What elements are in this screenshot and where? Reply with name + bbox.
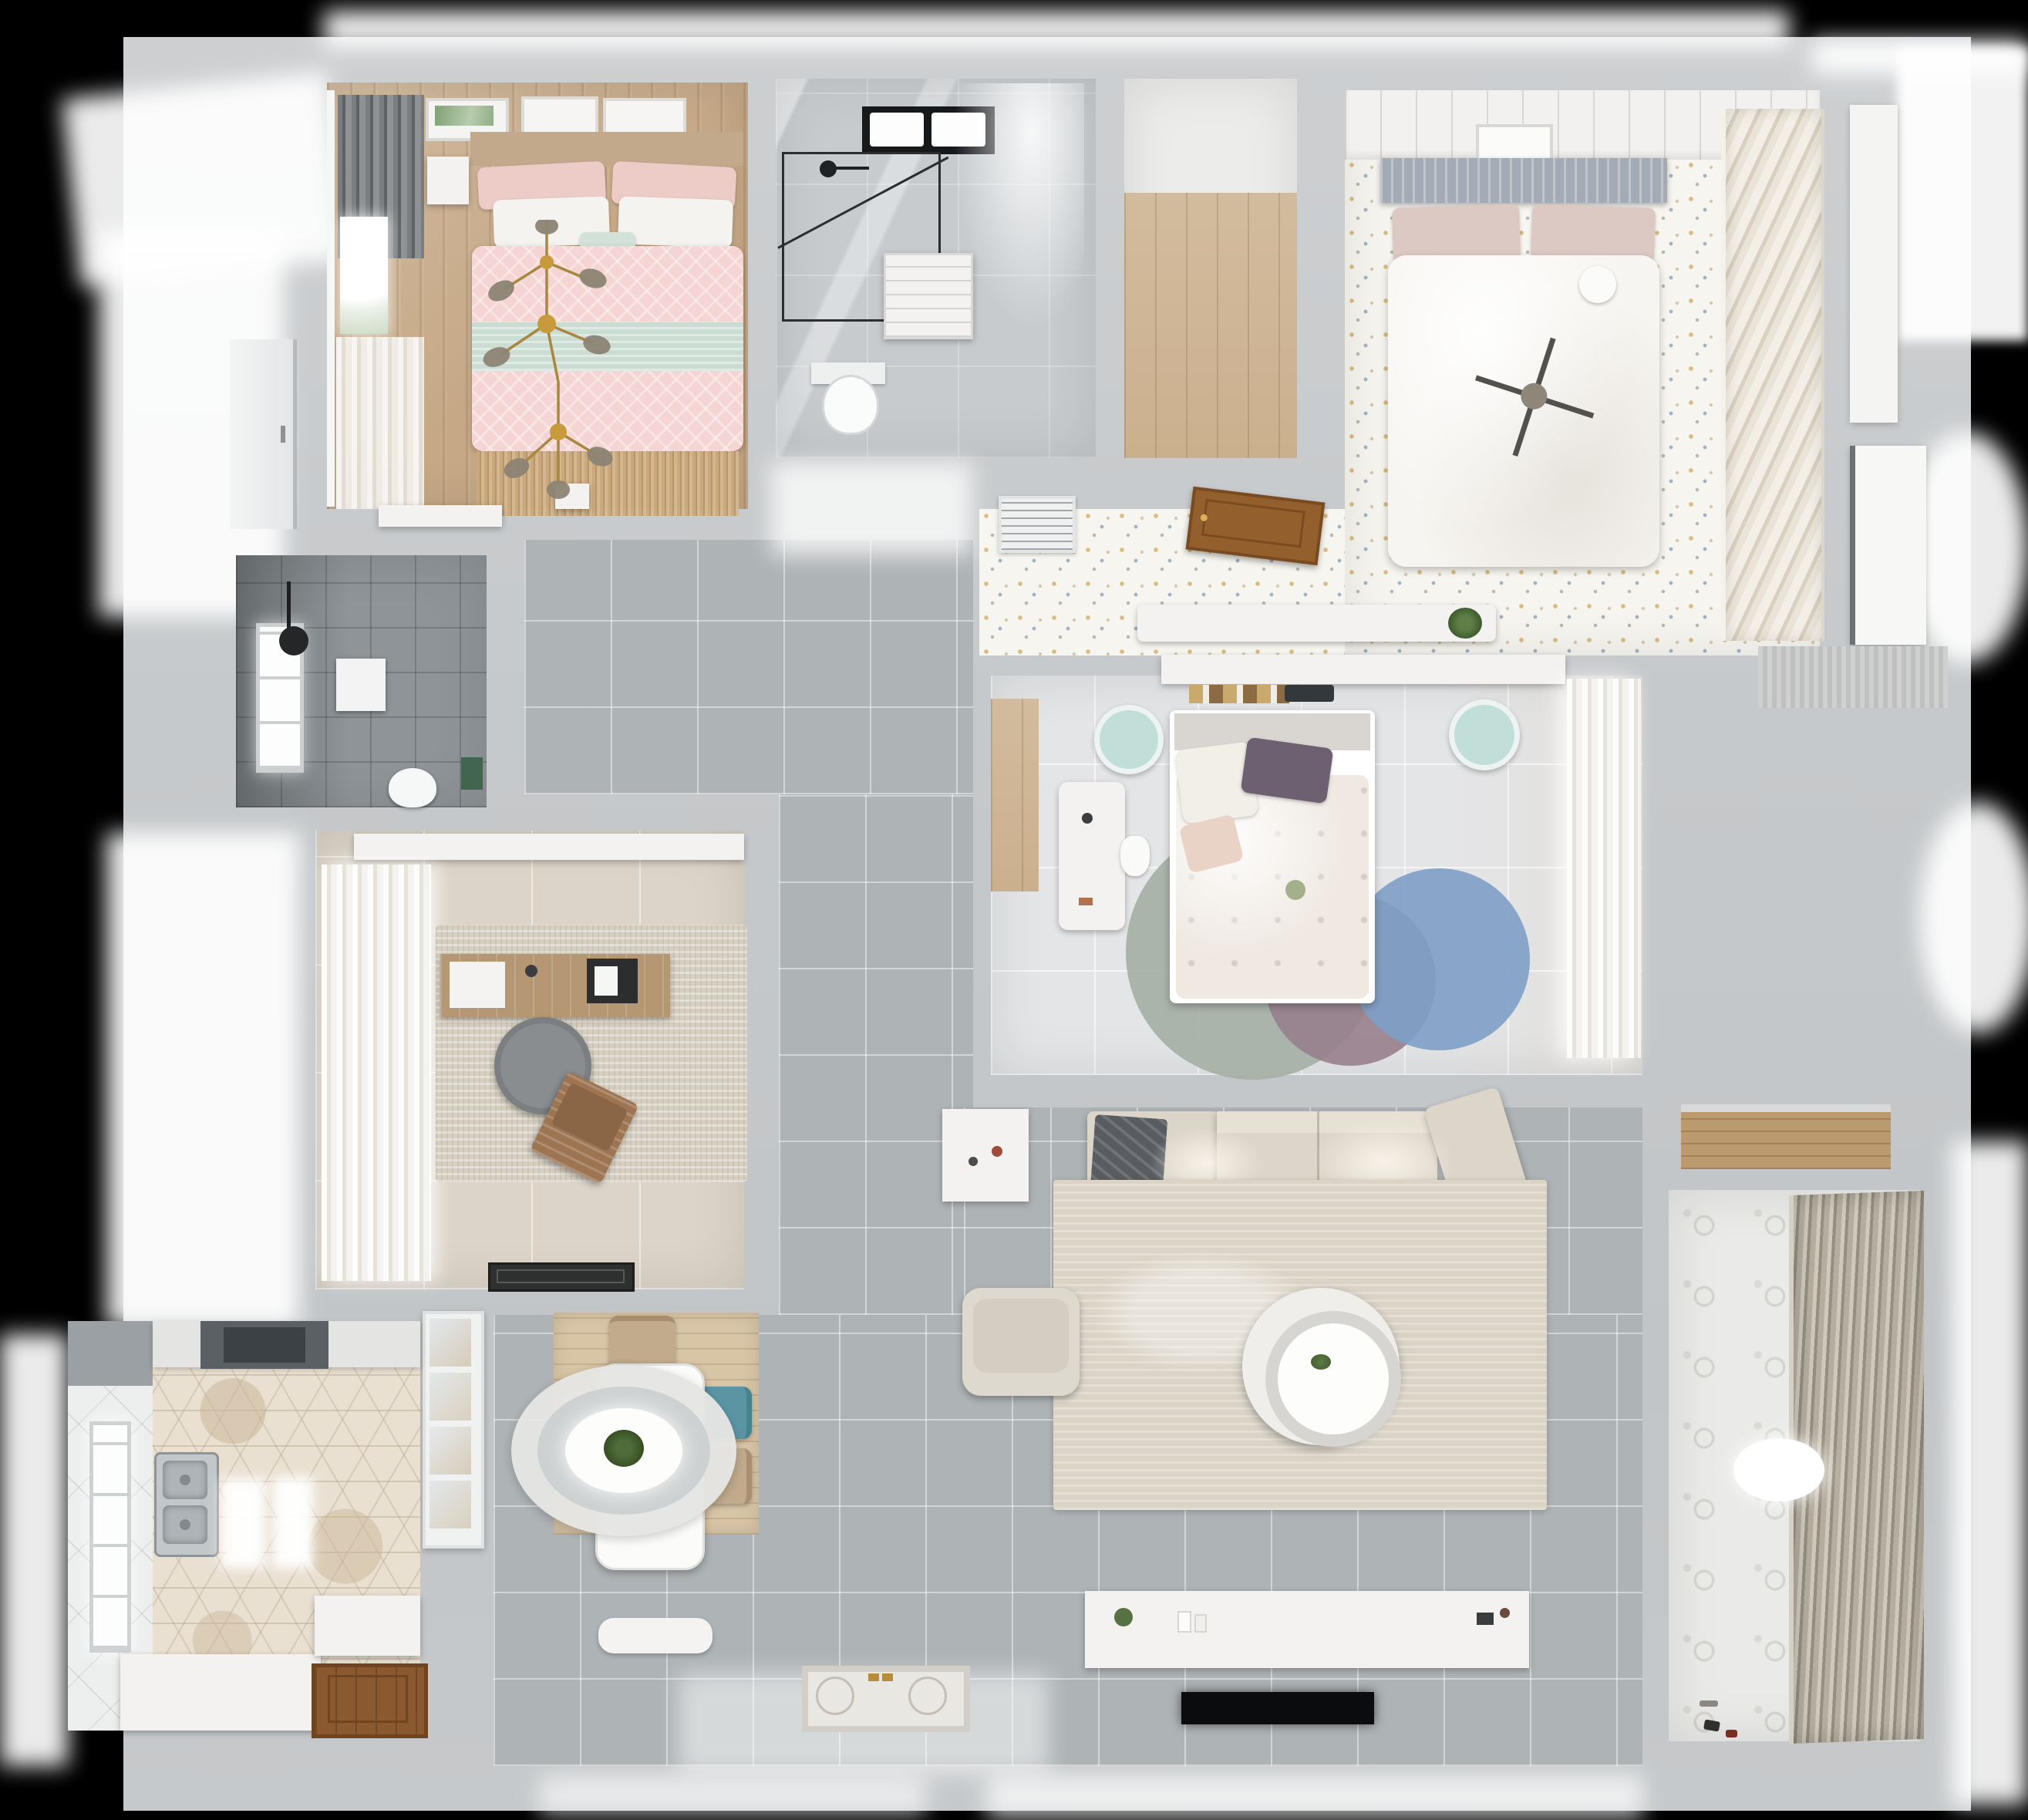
cabinet-pane-3 — [430, 1427, 471, 1475]
headboard-shelf — [1161, 655, 1565, 684]
office-shelf — [354, 834, 744, 860]
console-bottle-1 — [1177, 1611, 1191, 1633]
doormat-circle-left — [816, 1677, 854, 1715]
curtain-panel-light — [336, 337, 424, 509]
exterior-glow-kitchen — [0, 1334, 68, 1766]
doormat-handle-right — [882, 1673, 893, 1681]
circle-rug-blue — [1348, 868, 1530, 1050]
console-plant-decor — [1114, 1608, 1133, 1626]
office-curtains — [322, 865, 431, 1281]
window-light — [340, 217, 388, 334]
counter-bottom — [120, 1654, 321, 1731]
balcony-closet-wood-shelf — [1681, 1104, 1891, 1169]
door-left-leaf — [230, 339, 297, 529]
doormat-handle-left — [868, 1673, 879, 1681]
toilet-bowl — [822, 375, 879, 435]
bed-guest — [1380, 158, 1667, 575]
coffee-table-ring — [1265, 1311, 1401, 1447]
headboard-gray — [1380, 158, 1667, 203]
pillow-purple — [1241, 737, 1334, 804]
exterior-glow-bottom-entry — [540, 1775, 925, 1815]
art-green-leaves — [435, 106, 494, 126]
balcony-ceiling-light — [1733, 1438, 1824, 1501]
console-plant — [1448, 608, 1482, 639]
exterior-glow-right-blob2 — [1920, 802, 2028, 1033]
console-shelf — [1137, 605, 1496, 642]
door-panel-line — [1201, 499, 1305, 548]
toilet-dark-room — [389, 768, 436, 807]
exterior-glow-right-corner — [1897, 48, 2028, 341]
tv-console — [1085, 1591, 1529, 1668]
room-home-office — [315, 831, 744, 1289]
armchair — [962, 1288, 1080, 1396]
shower-head-dark — [279, 626, 308, 656]
armchair-seat — [973, 1299, 1069, 1373]
dining-chair-bottom — [598, 1618, 712, 1653]
exterior-glow-top — [324, 11, 1789, 48]
room-kitchen — [68, 1321, 420, 1731]
toy-red — [1726, 1730, 1737, 1737]
window-sill — [327, 90, 335, 507]
desk-return-panel — [450, 962, 505, 1008]
nightstand — [427, 157, 469, 204]
glass-cabinet — [423, 1311, 484, 1549]
bedroom-master-bench — [379, 505, 502, 527]
desk-item-copper — [1079, 898, 1093, 905]
laptop-screen — [595, 966, 618, 996]
shower-arm — [835, 167, 869, 170]
toy-gray — [1700, 1700, 1718, 1707]
desk-item-dark — [1082, 813, 1093, 824]
kitchen-wood-door — [312, 1663, 428, 1738]
range-hood — [200, 1321, 328, 1369]
closet-wood-floor — [1124, 193, 1297, 458]
wood-door-panel — [328, 1675, 408, 1723]
hall-door-glow — [771, 463, 972, 555]
room-bathroom-shower — [236, 555, 487, 807]
air-vent — [999, 496, 1076, 553]
cabinet-pane-1 — [430, 1319, 471, 1367]
room-bedroom-master — [327, 83, 748, 509]
right-open-door — [1850, 446, 1926, 645]
entry-doormat — [802, 1666, 970, 1732]
counter-right — [315, 1596, 420, 1656]
laptop — [587, 959, 638, 1003]
tv-screen — [1181, 1692, 1374, 1724]
sink-drain-bottom — [180, 1519, 190, 1530]
coffee-table-sprig — [1311, 1354, 1331, 1370]
bedside-stool-left — [1094, 705, 1164, 774]
toy-dark — [1703, 1719, 1720, 1731]
doormat-circle-right — [908, 1677, 947, 1715]
exterior-glow-left-office — [106, 833, 299, 1326]
kitchen-wall-gray — [68, 1321, 153, 1386]
floorplan-stage — [0, 0, 2028, 1820]
cabinet-pane-2 — [430, 1373, 471, 1421]
console-cup — [1500, 1608, 1510, 1618]
bedroom2-desk — [1059, 782, 1125, 930]
side-table-decor-dark — [969, 1157, 978, 1166]
room-balcony — [1669, 1190, 1919, 1741]
shower-glass-diagonal — [777, 157, 948, 249]
skylight-pane-left — [870, 113, 924, 147]
side-table — [942, 1109, 1029, 1202]
exterior-glow-right-balcony — [1952, 1141, 2028, 1805]
slatted-wardrobe — [1721, 109, 1824, 641]
shelf-books — [1189, 685, 1289, 703]
right-hatched-floor — [1758, 646, 1948, 708]
branch-chandelier — [466, 220, 628, 509]
kitchen-window — [89, 1421, 131, 1653]
office-doormat — [488, 1262, 635, 1292]
desk-lamp — [525, 965, 537, 977]
duvet-sage-accent — [1285, 880, 1305, 900]
cabinet-pane-4 — [430, 1481, 471, 1528]
exterior-glow-bottom-living — [987, 1775, 1642, 1818]
shower-pole — [287, 581, 291, 631]
hood-inner — [224, 1327, 305, 1363]
bedroom2-curtains — [1567, 679, 1641, 1058]
console-dark-item — [1477, 1613, 1494, 1625]
cross-center — [1518, 379, 1551, 413]
toilet — [811, 362, 885, 433]
room-storage-closet — [1124, 79, 1297, 458]
office-desk — [440, 954, 670, 1017]
shelf-tablet — [1285, 685, 1334, 702]
double-sink — [154, 1452, 219, 1557]
plant-centerpiece — [604, 1430, 644, 1467]
hall-upper — [524, 540, 973, 794]
hall-corridor — [779, 794, 973, 1315]
shower-head — [820, 160, 837, 177]
room-bathroom-main — [776, 79, 1096, 458]
side-table-decor-red — [992, 1146, 1002, 1157]
wood-floor-strip — [991, 699, 1039, 891]
green-towel — [461, 757, 483, 790]
wall-niche — [336, 659, 386, 711]
room-bedroom-guest — [1345, 90, 1820, 656]
bedside-stool-right — [1449, 699, 1520, 770]
doormat-inner-line — [497, 1269, 625, 1283]
door-handle — [281, 426, 285, 443]
console-bottle-2 — [1194, 1614, 1207, 1633]
sink-drain-top — [180, 1475, 190, 1485]
kitchen-light-right — [273, 1477, 313, 1568]
right-partition-white — [1850, 105, 1898, 423]
vanity-cabinet — [884, 253, 973, 339]
round-pillow — [1579, 266, 1616, 303]
kitchen-light-left — [221, 1478, 265, 1568]
bed-second — [1170, 710, 1375, 1003]
bedroom2-desk-chair — [1120, 836, 1150, 876]
